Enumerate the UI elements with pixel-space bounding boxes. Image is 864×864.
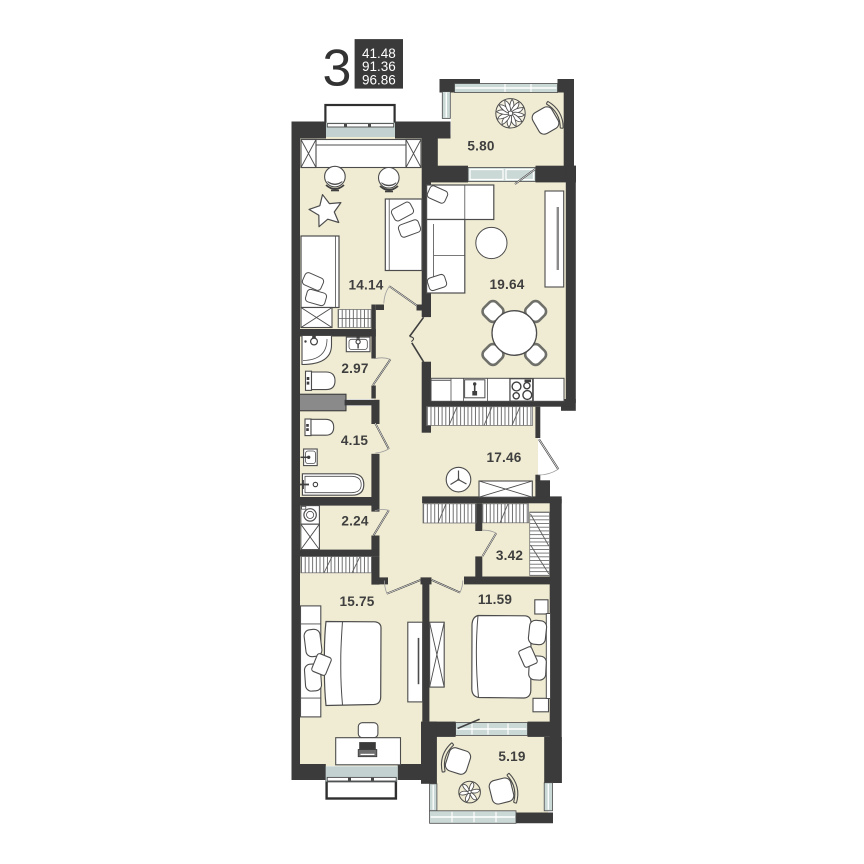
svg-text:3.42: 3.42 (496, 548, 523, 563)
svg-text:5.19: 5.19 (498, 749, 525, 764)
svg-text:5.80: 5.80 (467, 139, 494, 154)
svg-text:3: 3 (323, 40, 352, 98)
svg-text:19.64: 19.64 (489, 277, 524, 292)
svg-text:15.75: 15.75 (339, 594, 374, 609)
svg-text:11.59: 11.59 (478, 592, 513, 607)
svg-text:17.46: 17.46 (486, 450, 521, 465)
svg-text:14.14: 14.14 (348, 278, 383, 293)
svg-text:2.97: 2.97 (341, 361, 368, 376)
svg-text:4.15: 4.15 (341, 433, 368, 448)
svg-text:96.86: 96.86 (362, 72, 396, 87)
svg-text:2.24: 2.24 (341, 514, 368, 529)
